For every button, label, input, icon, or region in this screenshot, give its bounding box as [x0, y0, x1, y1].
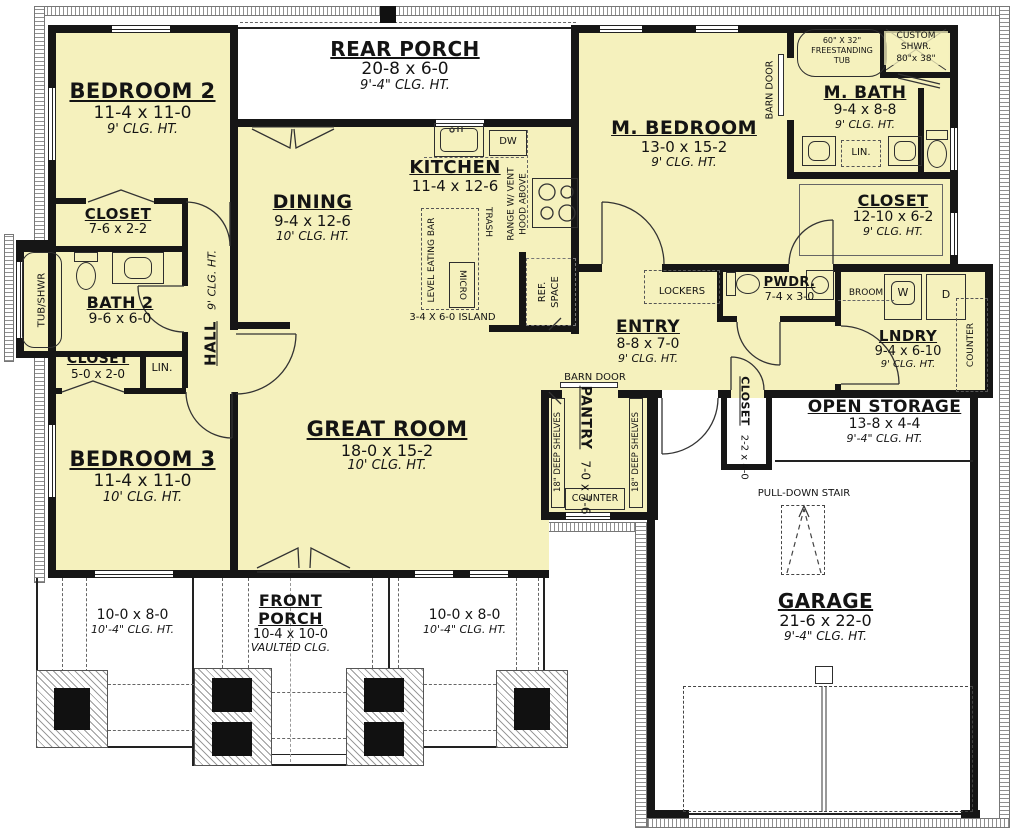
- door-opening: [541, 332, 549, 390]
- room-label-pwdr: PWDR. 7-4 x 3-0: [742, 276, 837, 303]
- label-island: 3-4 X 6-0 ISLAND: [400, 312, 505, 323]
- porch-beam-dash: [108, 684, 194, 685]
- porch-beam-dash: [222, 578, 223, 668]
- label-dryer: D: [926, 289, 966, 301]
- garage-ceiling-line: [683, 686, 973, 812]
- label-freestanding-tub: 60" X 32" FREESTANDING TUB: [799, 36, 885, 66]
- sink: [894, 141, 916, 161]
- room-label-open-storage: OPEN STORAGE 13-8 x 4-4 9'-4" CLG. HT.: [782, 398, 987, 445]
- room-label-great-room: GREAT ROOM 18-0 x 15-2 10' CLG. HT.: [297, 418, 477, 474]
- window: [470, 570, 508, 578]
- door-opening: [835, 326, 841, 384]
- label-dw: DW: [489, 136, 527, 147]
- wall: [766, 390, 772, 470]
- eave-band-top: [34, 6, 1010, 16]
- toilet-bowl: [76, 262, 96, 290]
- wall: [234, 119, 579, 127]
- room-label-bedroom2: BEDROOM 2 11-4 x 11-0 9' CLG. HT.: [55, 80, 230, 137]
- room-label-hall: HALL 9' CLG. HT.: [201, 250, 220, 366]
- label-pantry-counter: COUNTER: [565, 494, 625, 505]
- label-lin-mbath: LIN.: [841, 147, 881, 158]
- room-label-rear-porch: REAR PORCH 20-8 x 6-0 9'-4" CLG. HT.: [300, 38, 510, 94]
- toilet-bowl: [927, 140, 947, 168]
- door-opening: [188, 198, 230, 204]
- label-range: RANGE W/ VENT HOOD ABOVE: [506, 167, 529, 240]
- barn-door-panel: [778, 54, 784, 116]
- label-washer: W: [884, 287, 922, 299]
- label-barn-door-pantry: BARN DOOR: [552, 372, 638, 383]
- eave-band-garage-west: [635, 522, 647, 828]
- label-left-porch: 10-0 x 8-0 10'-4" CLG. HT.: [70, 608, 195, 636]
- broom-dash: [838, 300, 894, 301]
- eave-band-garage-bottom: [647, 818, 1010, 828]
- open-storage-line: [775, 460, 973, 462]
- toilet-tank: [726, 272, 736, 296]
- porch-column-core: [212, 678, 252, 712]
- room-label-m-closet: CLOSET 12-10 x 6-2 9' CLG. HT.: [818, 192, 968, 238]
- label-barn-door-mbath: BARN DOOR: [765, 61, 776, 120]
- room-label-bath2: BATH 2 9-6 x 6-0: [58, 294, 182, 328]
- eave-band-right: [999, 6, 1010, 828]
- room-label-front-porch: FRONT PORCH 10-4 x 10-0 VAULTED CLG.: [228, 592, 353, 655]
- wall: [880, 72, 952, 78]
- window: [600, 25, 642, 33]
- pull-down-stair-box: [781, 505, 825, 575]
- porch-beam-dash: [62, 578, 63, 672]
- room-label-m-bedroom: M. BEDROOM 13-0 x 15-2 9' CLG. HT.: [595, 118, 773, 170]
- wall: [721, 390, 727, 470]
- porch-column-core: [364, 678, 404, 712]
- room-label-closet-b3: CLOSET 5-0 x 2-0: [50, 352, 146, 381]
- room-label-lndry: LNDRY 9-4 x 6-10 9' CLG. HT.: [858, 328, 958, 371]
- label-tub-shwr: TUB/SHWR: [37, 273, 48, 327]
- label-level-eating-bar: LEVEL EATING BAR: [427, 218, 437, 303]
- wall: [230, 25, 238, 578]
- room-label-closet-b2: CLOSET 7-6 x 2-2: [58, 206, 178, 237]
- label-linen-hall: LIN.: [142, 362, 182, 374]
- room-label-garage: GARAGE 21-6 x 22-0 9'-4" CLG. HT.: [738, 590, 913, 644]
- room-label-m-bath: M. BATH 9-4 x 8-8 9' CLG. HT.: [800, 84, 930, 131]
- wall: [787, 172, 950, 179]
- eave-band-pantry: [545, 522, 649, 532]
- window: [950, 128, 958, 170]
- door-opening: [62, 388, 124, 394]
- porch-column-core: [514, 688, 550, 730]
- wall: [650, 390, 658, 520]
- label-custom-shwr: CUSTOM SHWR. 80"x 38": [884, 31, 948, 65]
- porch-column-core: [212, 722, 252, 756]
- door-opening: [230, 330, 238, 392]
- door-opening: [662, 390, 718, 398]
- porch-column-core: [364, 722, 404, 756]
- door-opening: [86, 198, 154, 204]
- label-ref-space: REF. SPACE: [536, 276, 562, 308]
- door-opening: [182, 286, 188, 332]
- label-shelves-west: 18" DEEP SHELVES: [553, 412, 563, 492]
- porch-beam-dash: [272, 738, 346, 739]
- window: [95, 570, 173, 578]
- door-opening: [737, 316, 780, 322]
- rear-porch-roof-dash: [240, 22, 576, 23]
- porch-beam-dash: [538, 578, 539, 670]
- toilet-tank: [74, 252, 98, 262]
- label-lockers: LOCKERS: [644, 286, 720, 297]
- floor-plan: BEDROOM 2 11-4 x 11-0 9' CLG. HT. CLOSET…: [0, 0, 1024, 839]
- sink: [124, 257, 152, 279]
- room-label-entry: ENTRY 8-8 x 7-0 9' CLG. HT.: [593, 318, 703, 365]
- toilet-tank: [926, 130, 948, 140]
- room-label-closet-garage: CLOSET 2-2 x 4-0: [738, 376, 757, 479]
- range: [532, 178, 578, 228]
- window: [415, 570, 453, 578]
- label-trash: TRASH: [483, 207, 493, 237]
- door-opening: [186, 388, 232, 394]
- label-pull-down-stair: PULL-DOWN STAIR: [748, 488, 860, 499]
- label-lndry-counter: COUNTER: [966, 323, 976, 367]
- label-shelves-east: 18" DEEP SHELVES: [631, 412, 641, 492]
- window: [112, 25, 170, 33]
- door-opening: [787, 58, 794, 120]
- label-right-porch: 10-0 x 8-0 10'-4" CLG. HT.: [402, 608, 527, 636]
- porch-column-core: [54, 688, 90, 730]
- room-label-dining: DINING 9-4 x 12-6 10' CLG. HT.: [240, 192, 385, 244]
- window: [696, 25, 738, 33]
- wall: [489, 325, 579, 332]
- label-micro: MICRO: [457, 270, 467, 300]
- wall: [519, 252, 526, 332]
- sink: [808, 141, 830, 161]
- sink-basin: [440, 128, 478, 152]
- porch-beam-dash: [424, 684, 496, 685]
- rear-porch-edge: [238, 27, 578, 29]
- room-label-kitchen: KITCHEN 11-4 x 12-6: [390, 158, 520, 195]
- porch-beam-dash: [424, 730, 496, 731]
- wall: [571, 25, 579, 272]
- porch-beam-dash: [398, 578, 399, 668]
- wall: [234, 322, 290, 329]
- porch-beam-dash: [272, 692, 346, 693]
- room-label-bedroom3: BEDROOM 3 11-4 x 11-0 10' CLG. HT.: [55, 448, 230, 505]
- garage-post: [815, 666, 833, 684]
- eave-band-tub-bump: [4, 234, 14, 362]
- rear-porch-post: [380, 6, 396, 23]
- garage-door-line: [689, 813, 961, 815]
- porch-beam-dash: [108, 730, 194, 731]
- porch-beam-dash: [372, 578, 373, 668]
